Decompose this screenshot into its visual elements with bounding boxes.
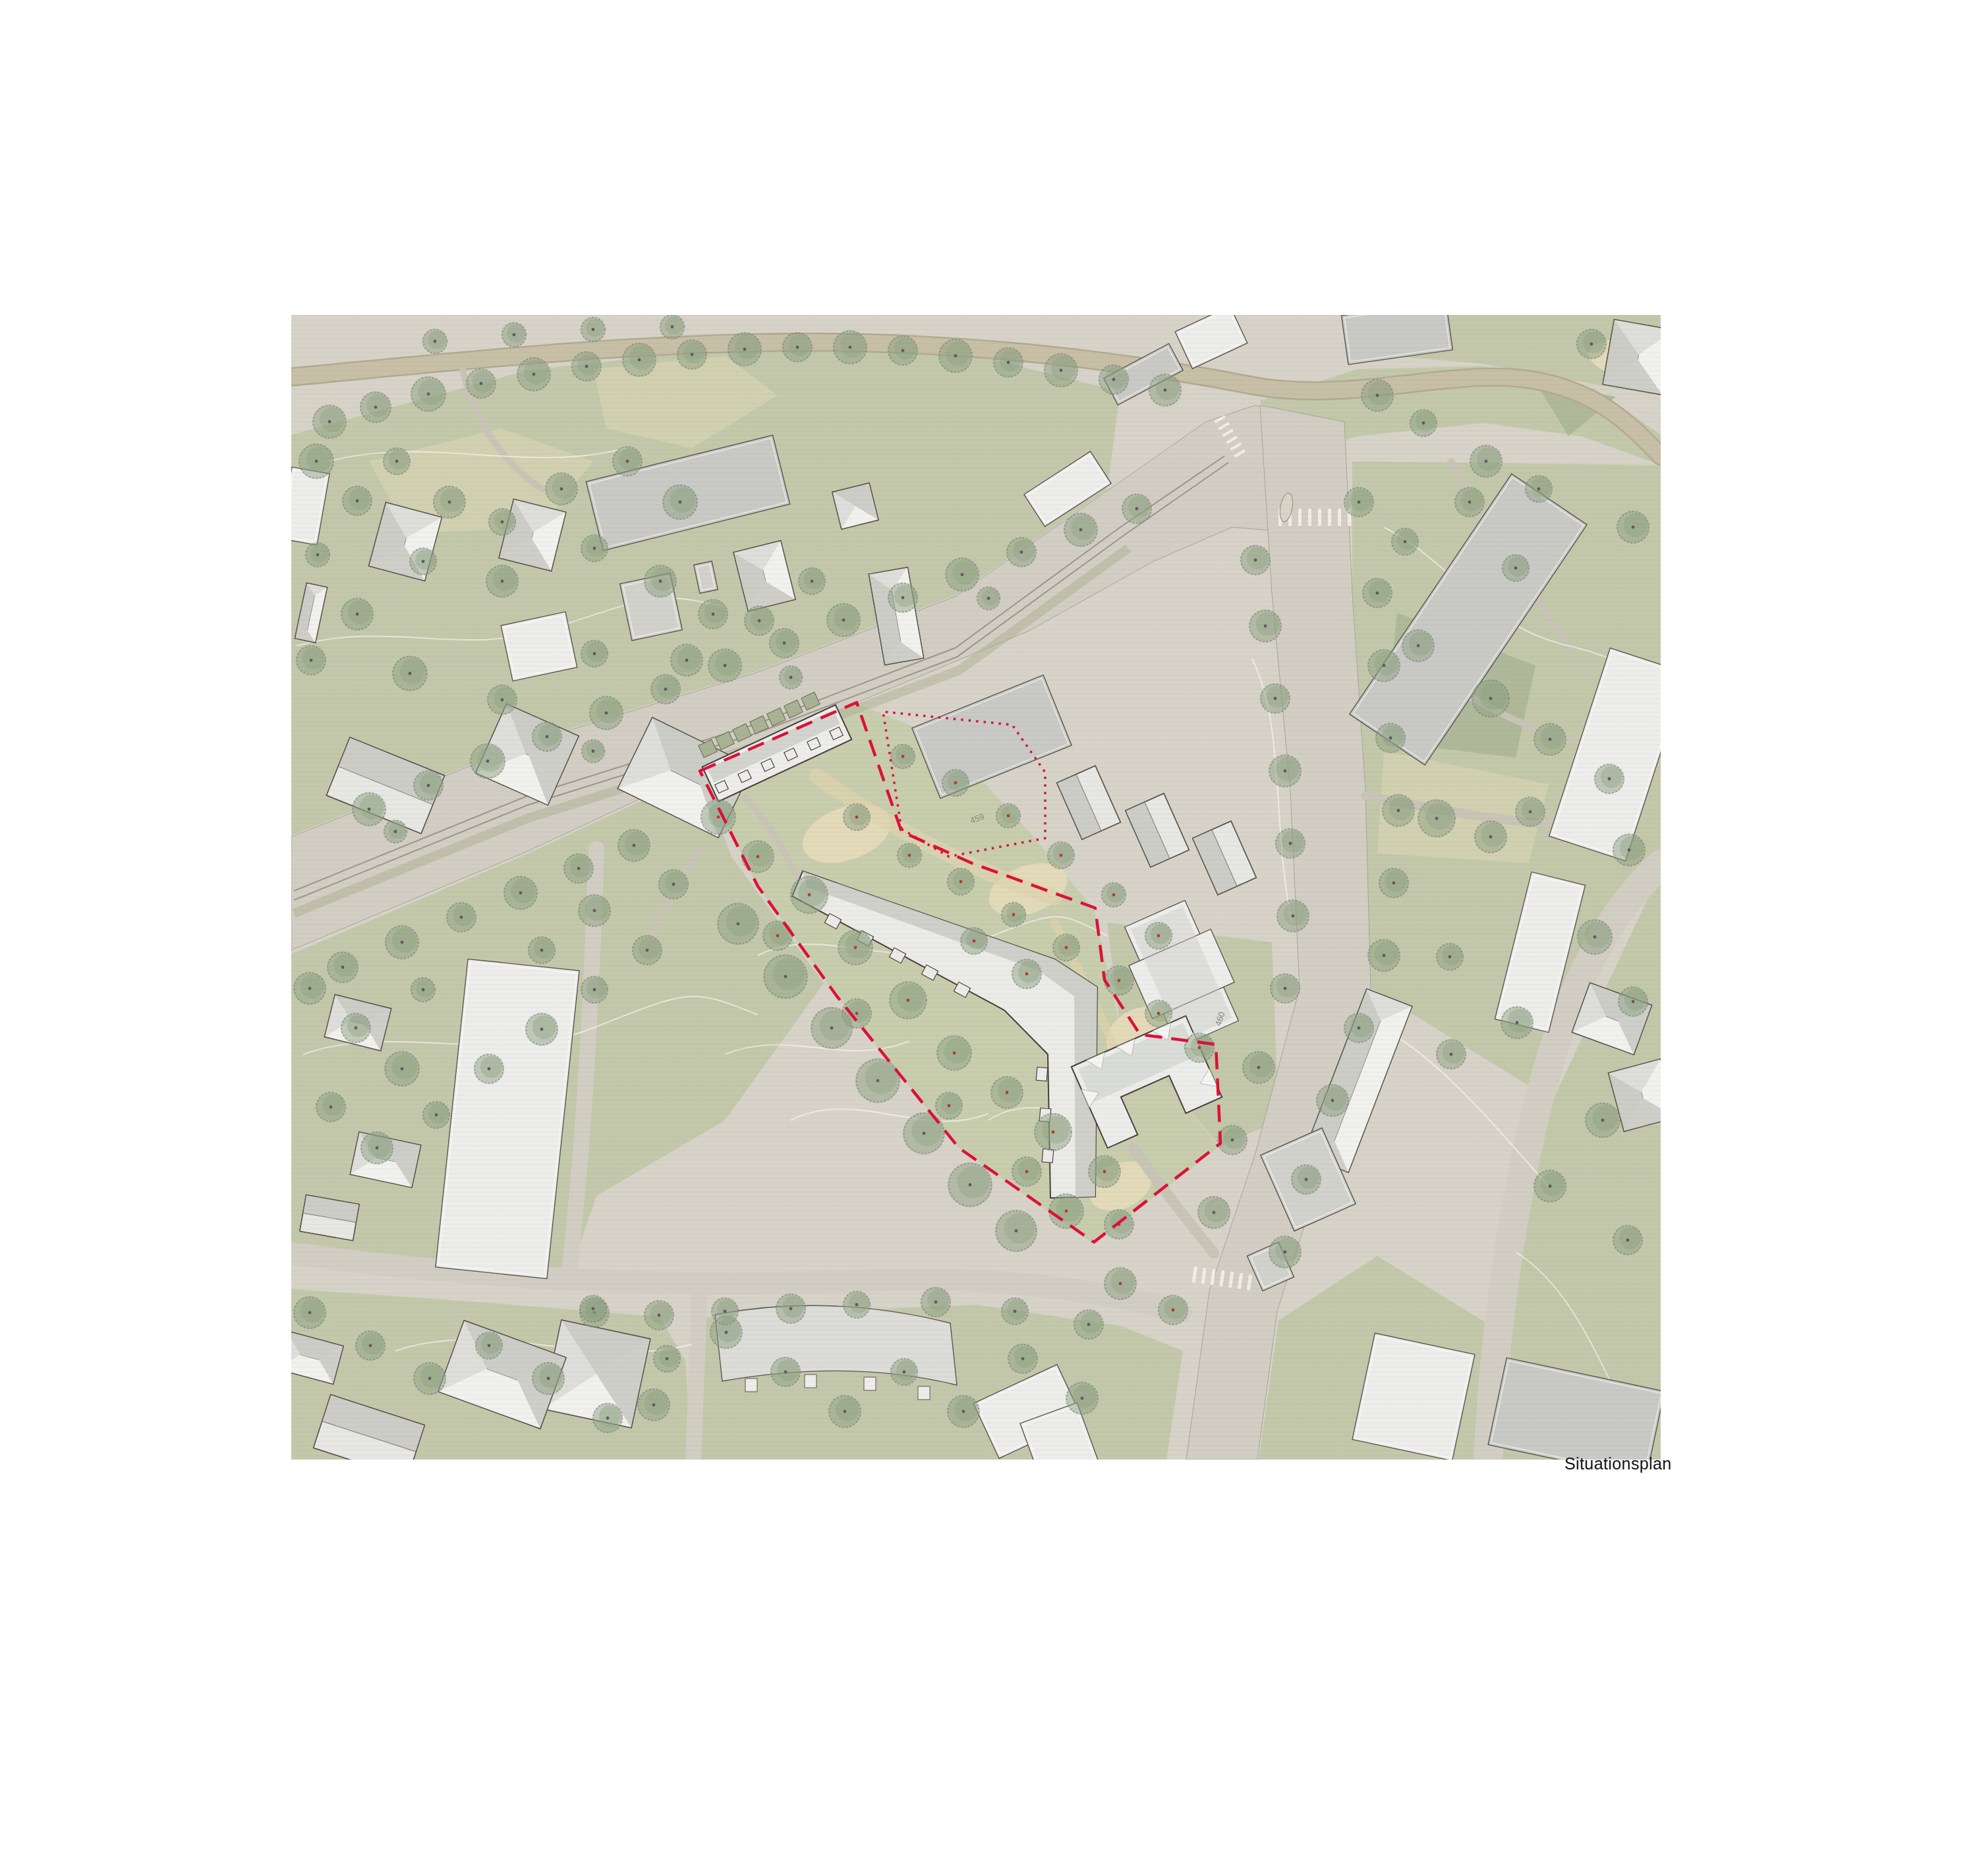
- tree: [581, 976, 608, 1004]
- tree: [592, 1403, 623, 1433]
- tree-new: [843, 803, 871, 831]
- tree: [1099, 364, 1129, 395]
- building-flatW: [1352, 1333, 1475, 1460]
- tree: [826, 603, 861, 637]
- tree: [644, 565, 677, 598]
- tree: [411, 376, 446, 412]
- tree: [474, 1054, 504, 1084]
- tree: [993, 347, 1023, 378]
- tree: [903, 1112, 945, 1154]
- tree-new: [1012, 1156, 1042, 1187]
- tree-new: [990, 1076, 1023, 1109]
- tree: [1242, 1051, 1275, 1084]
- tree: [1585, 1102, 1620, 1138]
- tree: [995, 1210, 1037, 1252]
- tree: [581, 317, 606, 342]
- tree: [888, 335, 918, 366]
- tree: [581, 739, 605, 763]
- tree: [1402, 629, 1435, 662]
- tree: [413, 770, 444, 801]
- tree-new: [1104, 1267, 1137, 1300]
- tree: [658, 869, 689, 899]
- tree: [728, 332, 762, 366]
- site-plan-svg: 460459: [291, 315, 1661, 1460]
- tree: [383, 447, 411, 475]
- tree: [525, 1013, 558, 1046]
- tree: [1006, 537, 1037, 567]
- tree: [342, 486, 372, 516]
- tree: [466, 368, 496, 399]
- tree: [1379, 868, 1409, 898]
- tree-new: [1047, 841, 1075, 869]
- tree: [360, 391, 391, 423]
- tree: [779, 666, 803, 689]
- tree-new: [889, 981, 927, 1019]
- tree: [662, 484, 698, 520]
- tree: [411, 977, 436, 1002]
- tree: [1316, 1084, 1349, 1117]
- tree: [528, 936, 556, 964]
- tree-new: [701, 799, 736, 835]
- tree-new: [1034, 1113, 1072, 1151]
- tree: [612, 446, 643, 476]
- page: 460459 Situationsplan: [0, 0, 1977, 1876]
- tree: [413, 1362, 446, 1395]
- tree-new: [1158, 1295, 1188, 1325]
- tree: [1270, 973, 1300, 1004]
- tree: [947, 1395, 980, 1428]
- tree-new: [1001, 902, 1026, 927]
- tree-new: [1184, 1033, 1215, 1063]
- tree: [1533, 1170, 1566, 1203]
- tree: [409, 548, 437, 575]
- tree: [1064, 513, 1098, 547]
- tree: [1515, 797, 1545, 827]
- tree: [833, 330, 867, 364]
- tree: [1074, 1309, 1104, 1340]
- tree: [1276, 899, 1309, 932]
- tree: [488, 508, 516, 536]
- tree: [1375, 723, 1406, 753]
- tree: [384, 1051, 420, 1087]
- tree: [1410, 409, 1437, 437]
- tree: [1533, 723, 1566, 756]
- tree: [385, 925, 419, 959]
- tree: [422, 329, 447, 354]
- tree: [763, 954, 808, 999]
- tree: [890, 1358, 918, 1386]
- tree: [798, 567, 826, 595]
- tree: [1066, 1382, 1099, 1415]
- tree-new: [1145, 1000, 1172, 1027]
- tree-new: [762, 921, 793, 951]
- tree: [475, 1332, 503, 1359]
- tree: [670, 644, 703, 677]
- tree: [660, 315, 685, 339]
- tree: [1269, 754, 1302, 787]
- tree: [811, 1007, 853, 1049]
- tree: [352, 792, 386, 826]
- tree: [589, 696, 623, 730]
- tree: [1436, 943, 1464, 971]
- tree-new: [1048, 1193, 1084, 1229]
- tree: [1501, 1006, 1533, 1039]
- tree: [1391, 528, 1419, 555]
- tree: [1525, 475, 1553, 503]
- tree: [581, 534, 608, 562]
- tree: [1577, 919, 1613, 955]
- tree: [744, 606, 774, 636]
- tree: [1474, 820, 1507, 853]
- tree: [312, 405, 347, 439]
- tree: [470, 743, 505, 779]
- tree: [299, 443, 334, 479]
- tree: [1436, 1039, 1466, 1069]
- tree: [392, 656, 428, 691]
- plan-caption: Situationsplan: [1564, 1454, 1672, 1473]
- tree-new: [1012, 959, 1042, 989]
- tree: [545, 472, 578, 505]
- tree: [1291, 1164, 1321, 1195]
- tree-new: [996, 803, 1021, 828]
- tree: [293, 1296, 326, 1329]
- tree: [446, 902, 476, 932]
- tree: [296, 645, 326, 675]
- tree: [1382, 794, 1415, 827]
- tree: [1454, 487, 1485, 517]
- tree: [1197, 1196, 1230, 1229]
- tree: [677, 339, 707, 370]
- tree: [622, 343, 656, 377]
- tree-new: [1101, 882, 1126, 907]
- tree: [579, 1295, 607, 1322]
- tree: [1418, 799, 1456, 838]
- tree: [698, 599, 728, 629]
- tree: [486, 565, 519, 598]
- tree: [578, 894, 611, 927]
- tree-new: [935, 1092, 963, 1120]
- tree: [384, 820, 407, 843]
- tree: [617, 829, 650, 862]
- tree: [305, 542, 330, 567]
- tree: [1122, 494, 1152, 524]
- tree: [1361, 379, 1394, 412]
- tree-new: [942, 769, 969, 797]
- tree: [708, 648, 742, 683]
- tree: [1269, 1236, 1302, 1268]
- tree: [653, 1345, 681, 1373]
- tree: [632, 935, 662, 965]
- tree-new: [947, 868, 975, 895]
- tree: [503, 876, 538, 910]
- tree: [581, 640, 608, 668]
- tree: [644, 1300, 674, 1330]
- tree: [1502, 554, 1530, 582]
- tree-new: [960, 927, 988, 955]
- tree: [711, 1297, 739, 1325]
- tree: [1008, 1344, 1038, 1374]
- tree: [487, 685, 517, 715]
- tree: [888, 583, 918, 613]
- tree: [1001, 1297, 1029, 1325]
- tree: [828, 1395, 861, 1428]
- tree: [316, 1092, 346, 1122]
- tree: [1249, 610, 1282, 642]
- tree-new: [790, 876, 828, 914]
- tree: [517, 357, 551, 391]
- tree: [1367, 649, 1400, 682]
- tree: [341, 1013, 371, 1043]
- tree: [327, 952, 358, 983]
- tree: [563, 853, 594, 884]
- tree-new: [1145, 922, 1172, 950]
- tree: [782, 332, 813, 362]
- tree: [532, 722, 562, 752]
- tree-new: [1052, 934, 1080, 961]
- tree: [945, 557, 979, 592]
- tree: [1617, 511, 1649, 544]
- tree: [769, 628, 799, 658]
- tree: [770, 1357, 801, 1387]
- tree: [341, 598, 374, 631]
- tree: [1149, 374, 1182, 407]
- tree-new: [890, 744, 915, 769]
- tree: [1275, 828, 1305, 859]
- tree: [501, 322, 527, 347]
- tree: [938, 339, 973, 373]
- tree: [1618, 986, 1648, 1017]
- tree: [1613, 1225, 1643, 1255]
- tree: [776, 1293, 806, 1324]
- tree-new: [838, 930, 873, 965]
- tree: [921, 1287, 951, 1317]
- tree-new: [936, 1035, 972, 1071]
- tree: [1344, 487, 1374, 517]
- tree: [1470, 445, 1503, 478]
- tree-new: [1088, 1155, 1121, 1188]
- tree: [433, 486, 466, 519]
- tree: [355, 1330, 386, 1361]
- tree: [650, 674, 681, 704]
- tree: [1362, 578, 1392, 608]
- tree: [855, 1058, 900, 1103]
- tree: [843, 1291, 871, 1319]
- tree: [1044, 353, 1078, 387]
- tree: [532, 1362, 565, 1395]
- tree: [571, 351, 602, 382]
- tree: [1367, 939, 1400, 972]
- tree: [717, 903, 759, 945]
- tree: [422, 1101, 450, 1129]
- tree-new: [1104, 965, 1134, 996]
- tree: [1594, 764, 1624, 794]
- tree: [1576, 329, 1607, 359]
- tree: [1260, 683, 1290, 714]
- tree: [1613, 834, 1646, 867]
- tree: [1344, 1013, 1374, 1043]
- tree: [948, 1162, 992, 1207]
- tree-new: [897, 843, 922, 868]
- tree-new: [741, 840, 774, 873]
- tree: [1240, 545, 1271, 575]
- tree: [293, 972, 326, 1005]
- tree: [637, 1388, 670, 1421]
- tree: [977, 586, 1000, 610]
- tree: [1472, 679, 1510, 718]
- tree: [360, 1131, 393, 1164]
- site-plan-map: 460459: [291, 315, 1661, 1460]
